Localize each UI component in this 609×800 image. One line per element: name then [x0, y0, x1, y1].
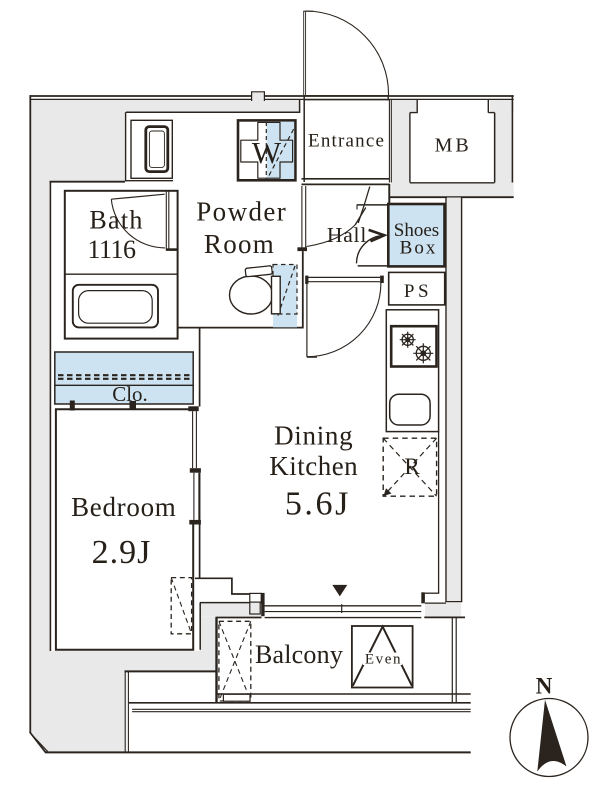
svg-text:Bedroom: Bedroom [71, 492, 176, 522]
svg-text:Room: Room [204, 229, 275, 259]
svg-text:Powder: Powder [196, 197, 287, 227]
svg-text:Hall: Hall [327, 223, 367, 247]
svg-text:5.6J: 5.6J [285, 486, 351, 523]
svg-text:1116: 1116 [87, 235, 136, 264]
svg-text:2.9J: 2.9J [92, 534, 152, 571]
svg-text:Entrance: Entrance [308, 131, 385, 152]
svg-text:Dining: Dining [274, 421, 353, 451]
svg-text:Kitchen: Kitchen [269, 451, 358, 481]
svg-text:Box: Box [400, 238, 438, 259]
svg-text:R: R [404, 454, 420, 479]
svg-text:Even: Even [365, 652, 402, 668]
svg-text:N: N [536, 674, 553, 699]
svg-text:Bath: Bath [89, 206, 143, 235]
svg-text:MB: MB [435, 135, 472, 157]
svg-text:W: W [252, 135, 282, 170]
svg-text:Balcony: Balcony [255, 640, 343, 669]
svg-text:PS: PS [404, 281, 432, 302]
